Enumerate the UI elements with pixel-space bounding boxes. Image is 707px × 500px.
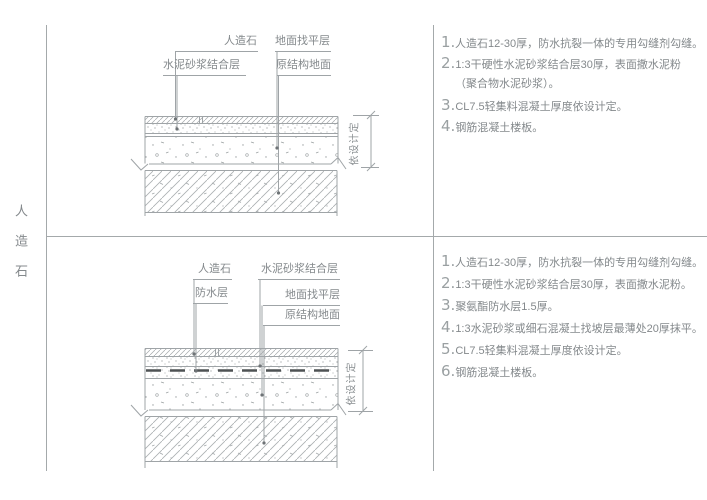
note-number: 1. [441, 250, 455, 272]
note-number: 2. [441, 53, 455, 74]
note-number: 1. [441, 32, 455, 53]
top-label-floor-leveling: 地面找平层 [275, 35, 330, 47]
top-notes-list: 1. 人造石12-30厚，防水抗裂一体的专用勾缝剂勾缝。 2. 1:3干硬性水泥… [441, 32, 703, 137]
bottom-label-floor-leveling: 地面找平层 [263, 289, 340, 301]
note-text: CL7.5轻集料混凝土厚度依设计定。 [455, 340, 627, 362]
note-number: 4. [441, 316, 455, 338]
note-row: 2. 1:3干硬性水泥砂浆结合层30厚，表面撒水泥粉。 [441, 272, 703, 294]
note-row: （聚合物水泥砂浆）。 [441, 74, 703, 95]
sheet-title-vertical: 人造石 [11, 204, 30, 294]
note-text: 1:3干硬性水泥砂浆结合层30厚，表面撒水泥粉。 [455, 274, 692, 296]
bottom-notes-list: 1. 人造石12-30厚，防水抗裂一体的专用勾缝剂勾缝。 2. 1:3干硬性水泥… [441, 250, 703, 382]
bottom-label-artificial-stone: 人造石 [193, 263, 231, 275]
top-label-cement-mortar: 水泥砂浆结合层 [163, 59, 240, 71]
note-number: 2. [441, 272, 455, 294]
note-row: 4. 1:3水泥砂浆或细石混凝土找坡层最薄处20厚抹平。 [441, 316, 703, 338]
note-number: 4. [441, 116, 455, 137]
cad-detail-sheet: 人造石 人造石 地面找平层 水泥砂浆结合层 原结构地面 依设计定 人造石 水泥砂… [0, 0, 707, 500]
note-row: 3. CL7.5轻集料混凝土厚度依设计定。 [441, 95, 703, 116]
note-text: 人造石12-30厚，防水抗裂一体的专用勾缝剂勾缝。 [455, 34, 703, 55]
note-row: 6. 钢筋混凝土楼板。 [441, 360, 703, 382]
bottom-label-original-structure: 原结构地面 [263, 309, 340, 321]
note-row: 4. 钢筋混凝土楼板。 [441, 116, 703, 137]
note-text: 1:3水泥砂浆或细石混凝土找坡层最薄处20厚抹平。 [455, 318, 703, 340]
note-text: CL7.5轻集料混凝土厚度依设计定。 [455, 97, 627, 118]
bottom-label-cement-mortar: 水泥砂浆结合层 [261, 263, 338, 275]
note-row: 1. 人造石12-30厚，防水抗裂一体的专用勾缝剂勾缝。 [441, 250, 703, 272]
note-row: 1. 人造石12-30厚，防水抗裂一体的专用勾缝剂勾缝。 [441, 32, 703, 53]
note-text: 钢筋混凝土楼板。 [455, 362, 543, 384]
top-dim-label: 依设计定 [346, 122, 361, 166]
top-detail-section [131, 52, 379, 217]
note-text: 人造石12-30厚，防水抗裂一体的专用勾缝剂勾缝。 [455, 252, 703, 274]
bottom-dim-label: 依设计定 [343, 362, 358, 406]
note-text: （聚合物水泥砂浆）。 [455, 74, 560, 95]
bottom-label-waterproof: 防水层 [193, 287, 228, 299]
note-number: 3. [441, 294, 455, 316]
note-row: 5. CL7.5轻集料混凝土厚度依设计定。 [441, 338, 703, 360]
top-label-original-structure: 原结构地面 [276, 59, 331, 71]
note-text: 聚氨酯防水层1.5厚。 [455, 296, 558, 318]
note-text: 1:3干硬性水泥砂浆结合层30厚，表面撒水泥粉 [455, 55, 681, 76]
note-row: 2. 1:3干硬性水泥砂浆结合层30厚，表面撒水泥粉 [441, 53, 703, 74]
bottom-detail-section [131, 280, 373, 469]
note-number: 6. [441, 360, 455, 382]
note-text: 钢筋混凝土楼板。 [455, 118, 543, 139]
note-row: 3. 聚氨酯防水层1.5厚。 [441, 294, 703, 316]
note-number: 3. [441, 95, 455, 116]
top-label-artificial-stone: 人造石 [175, 35, 257, 47]
note-number: 5. [441, 338, 455, 360]
